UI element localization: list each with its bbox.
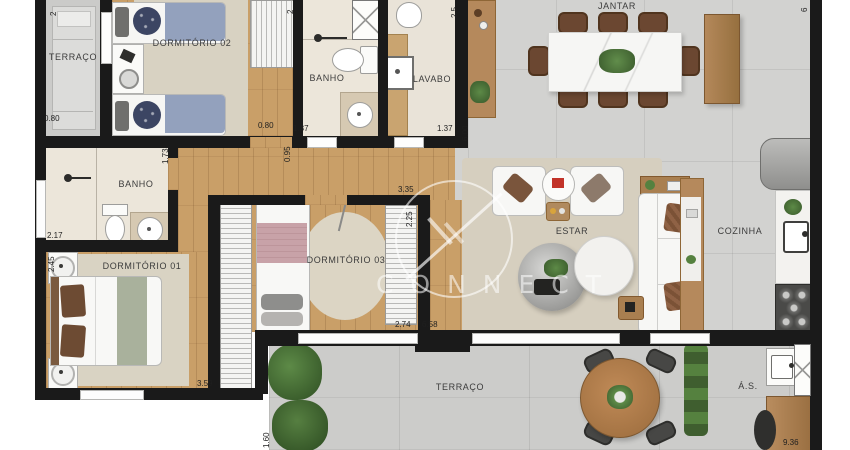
- hall-floor: [178, 143, 455, 203]
- dim-dorm2-wall: 0.95: [283, 146, 292, 162]
- nightstand: [112, 44, 144, 94]
- kitchen-island: [680, 178, 704, 338]
- door-opening-dorm1: [178, 240, 208, 252]
- dining-table: [548, 32, 682, 92]
- dim-dorm1-height: 2.45: [47, 256, 56, 272]
- bed-pillow: [261, 312, 303, 326]
- dim-terraco-top-width: 0.80: [44, 114, 60, 123]
- dim-banho2-width: 2.17: [47, 231, 63, 240]
- bed-cushion: [60, 284, 86, 318]
- polka-cushion: [133, 7, 161, 35]
- dim-area-servico: 9.36: [783, 438, 799, 447]
- double-bed: [50, 276, 162, 366]
- shower-arm: [71, 177, 91, 179]
- black-tray: [534, 279, 560, 295]
- toilet-bowl: [332, 48, 364, 72]
- black-decor: [625, 302, 635, 312]
- decor-dot: [550, 208, 556, 214]
- dim-dorm1-width: 3.59: [197, 379, 213, 388]
- single-bed-bottom: [112, 94, 226, 136]
- plant-bush: [272, 400, 328, 450]
- window-left: [36, 180, 46, 238]
- dish-decor: [686, 209, 698, 218]
- room-label-jantar: JANTAR: [584, 1, 650, 11]
- blue-blanket: [165, 3, 225, 41]
- sliding-door-terrace-2: [472, 333, 620, 344]
- service-door-panel: [794, 344, 811, 396]
- dining-chair: [528, 46, 550, 76]
- room-label-cozinha: COZINHA: [708, 226, 772, 236]
- bedroom3-round-rug: [300, 212, 390, 320]
- shower-glass-panel: [352, 0, 379, 40]
- terrace-bottom-floor: [269, 346, 810, 450]
- dim-dorm3-door: 6.58: [422, 320, 438, 329]
- door-opening-dorm3: [305, 195, 347, 205]
- decor-object: [119, 49, 135, 64]
- dim-lavabo-width: 1.37: [437, 124, 453, 133]
- wall-outer-right: [810, 0, 822, 450]
- decor-dot: [559, 208, 565, 214]
- door-opening-bath: [307, 137, 337, 148]
- lounge-line: [53, 39, 93, 40]
- vanity-counter: [340, 92, 379, 137]
- side-table-round: [542, 168, 575, 201]
- dim-dorm3-width: 2.74: [395, 320, 411, 329]
- wall-outer-bottom-left: [35, 388, 263, 400]
- plant-icon: [686, 255, 696, 264]
- drain-dot: [357, 112, 361, 116]
- table-plant: [607, 385, 633, 409]
- lounge-pillow: [57, 11, 91, 27]
- armchair-cushion: [502, 172, 535, 204]
- dim-cut-lavabo-top: 2.5: [450, 7, 459, 18]
- table-centerpiece-plant: [599, 49, 635, 73]
- door-opening-lavabo: [394, 137, 424, 148]
- shower2-divider: [96, 148, 97, 246]
- decor-dot: [479, 21, 488, 30]
- dim-banho-top-width: 1.37: [293, 124, 309, 133]
- single-bed-3: [256, 203, 310, 334]
- plant-icon: [645, 180, 655, 190]
- dim-banho2-door: 1.73: [161, 148, 170, 164]
- wardrobe-bedroom1: [220, 203, 252, 390]
- dining-chair: [598, 12, 628, 34]
- sliding-door-terrace-3: [650, 333, 710, 344]
- armchair-right: [570, 166, 624, 216]
- dim-dorm2-right: 0.80: [258, 121, 274, 130]
- lounge-chair: [52, 6, 96, 130]
- dim-terraco-bottom-side: 1.60: [262, 432, 271, 448]
- wall-pillar: [415, 330, 470, 352]
- room-label-banho-top: BANHO: [302, 73, 352, 83]
- room-label-estar: ESTAR: [548, 226, 596, 236]
- dim-cut-jantar-right: 6: [800, 8, 809, 12]
- sliding-door-terrace-1: [298, 333, 418, 344]
- bed-runner-green: [117, 277, 147, 365]
- wall-lavabo-living: [455, 0, 468, 143]
- terrace-round-table: [580, 358, 660, 438]
- armchair-cushion: [580, 172, 613, 204]
- dining-chair: [638, 12, 668, 34]
- floor-plan: TERRAÇO DORMITÓRIO 02 BANHO LAVABO JANTA…: [0, 0, 850, 450]
- dim-lavabo-height: 6.00: [461, 125, 470, 141]
- polka-cushion: [133, 101, 161, 129]
- lavabo-sink: [384, 56, 414, 90]
- wall-corridor-right: [208, 195, 220, 390]
- room-label-terraco-bottom: TERRAÇO: [428, 382, 492, 392]
- sliding-door-terrace-top: [101, 12, 112, 64]
- decor-dot: [474, 9, 482, 17]
- wall-bath2-bottom: [35, 240, 178, 252]
- wall-terrace-stub: [255, 330, 268, 394]
- toilet2-bowl: [105, 215, 125, 243]
- sheet-fold: [95, 277, 96, 365]
- wall-bath-lavabo: [378, 0, 388, 143]
- gray-throw: [115, 101, 129, 131]
- plant-bush: [268, 344, 322, 400]
- plant-icon: [544, 259, 568, 277]
- coffee-table-white: [574, 236, 634, 296]
- sofa-seam: [657, 194, 658, 333]
- hedge-planter: [684, 344, 708, 436]
- bed-cushion: [60, 324, 86, 358]
- room-label-dormitorio03: DORMITÓRIO 03: [304, 255, 388, 265]
- dim-cut-terraco-top: 2: [49, 12, 58, 16]
- cooktop-stove: [775, 284, 813, 332]
- room-label-area-servico: Á.S.: [730, 381, 766, 391]
- buffet-sideboard: [466, 0, 496, 118]
- blue-blanket: [165, 95, 225, 133]
- bed-pillow: [261, 294, 303, 310]
- armchair-left: [492, 166, 546, 216]
- room-label-terraco-top: TERRAÇO: [44, 52, 102, 62]
- dim-cut-banho-top: 2: [286, 10, 295, 14]
- plant-icon: [470, 81, 490, 103]
- gray-throw: [115, 7, 129, 37]
- wall-dorm3-right: [418, 195, 430, 335]
- washing-machine: [754, 410, 776, 450]
- room-label-dormitorio02: DORMITÓRIO 02: [142, 38, 242, 48]
- doorway-floor: [430, 200, 465, 332]
- shower-arm: [321, 37, 347, 39]
- dim-dorm3-top: 3.35: [398, 185, 414, 194]
- lavabo-toilet: [396, 2, 422, 28]
- decor-plate: [119, 69, 139, 89]
- wall-dorm2-bath: [293, 0, 303, 143]
- drain-dot: [395, 69, 400, 74]
- pink-blanket: [257, 223, 307, 263]
- dining-chair: [558, 12, 588, 34]
- lounge-line: [53, 111, 93, 112]
- small-wood-table: [546, 202, 570, 221]
- drain-dot: [147, 227, 151, 231]
- tall-cabinet: [704, 14, 740, 104]
- headboard: [51, 277, 59, 365]
- window-bedroom1: [80, 390, 144, 400]
- room-label-banho2: BANHO: [112, 179, 160, 189]
- dim-dorm3-side: 2.25: [405, 211, 414, 227]
- sofa-side-table: [618, 296, 644, 320]
- plant-icon: [784, 199, 802, 215]
- refrigerator: [760, 138, 812, 190]
- room-label-dormitorio01: DORMITÓRIO 01: [100, 261, 184, 271]
- red-decor: [552, 178, 564, 188]
- room-label-lavabo: LAVABO: [408, 74, 456, 84]
- faucet-dot: [802, 231, 808, 237]
- kitchen-counter: [775, 190, 813, 284]
- kitchen-sink: [783, 221, 809, 253]
